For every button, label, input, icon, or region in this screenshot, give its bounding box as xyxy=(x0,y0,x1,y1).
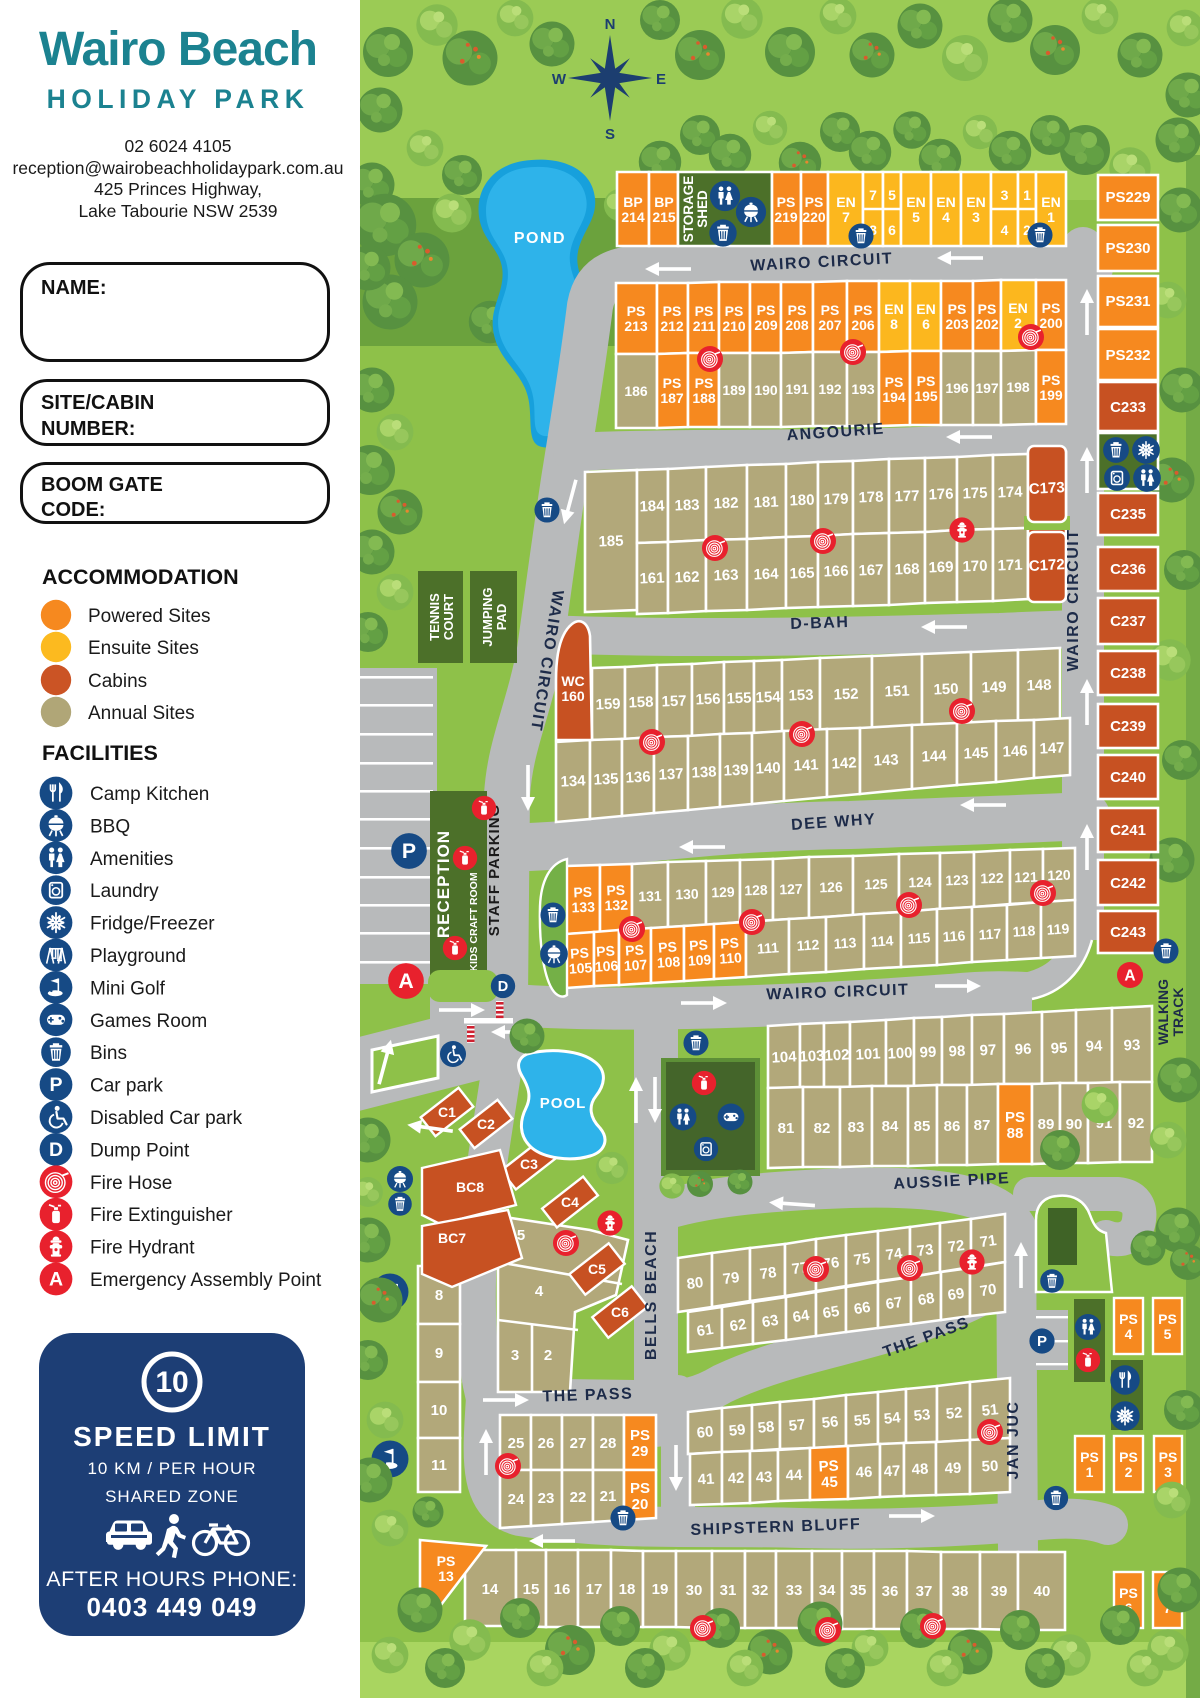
svg-text:60: 60 xyxy=(696,1423,714,1442)
svg-text:97: 97 xyxy=(979,1042,997,1060)
svg-text:PS230: PS230 xyxy=(1105,240,1150,257)
svg-text:PS132: PS132 xyxy=(604,882,629,914)
svg-text:87: 87 xyxy=(974,1117,991,1134)
svg-text:120: 120 xyxy=(1047,867,1071,884)
svg-text:Laundry: Laundry xyxy=(90,881,159,902)
svg-text:PS195: PS195 xyxy=(914,373,938,404)
svg-text:3: 3 xyxy=(511,1347,519,1364)
svg-text:92: 92 xyxy=(1128,1115,1145,1132)
svg-text:D-BAH: D-BAH xyxy=(790,614,850,633)
svg-text:104: 104 xyxy=(771,1048,798,1066)
svg-text:42: 42 xyxy=(727,1470,745,1488)
svg-text:127: 127 xyxy=(779,881,803,898)
svg-text:34: 34 xyxy=(819,1582,836,1599)
svg-text:PS219: PS219 xyxy=(774,194,798,225)
svg-text:117: 117 xyxy=(978,925,1002,942)
svg-text:32: 32 xyxy=(752,1582,769,1599)
svg-text:83: 83 xyxy=(848,1119,865,1136)
svg-text:70: 70 xyxy=(979,1281,998,1300)
svg-text:Bins: Bins xyxy=(90,1043,127,1064)
svg-text:86: 86 xyxy=(944,1118,961,1135)
svg-text:135: 135 xyxy=(593,770,619,788)
svg-text:C4: C4 xyxy=(561,1194,579,1210)
svg-text:78: 78 xyxy=(759,1264,778,1283)
svg-text:151: 151 xyxy=(884,682,910,700)
svg-text:C5: C5 xyxy=(588,1261,606,1277)
svg-text:PS203: PS203 xyxy=(945,301,969,332)
svg-text:RECEPTION: RECEPTION xyxy=(434,830,453,938)
svg-text:99: 99 xyxy=(919,1044,937,1062)
svg-text:PS220: PS220 xyxy=(802,194,826,225)
svg-text:Fridge/Freezer: Fridge/Freezer xyxy=(90,914,215,935)
svg-text:154: 154 xyxy=(755,688,781,706)
svg-text:61: 61 xyxy=(696,1321,715,1340)
svg-text:49: 49 xyxy=(944,1460,962,1478)
svg-text:PS88: PS88 xyxy=(1005,1109,1025,1142)
svg-text:3: 3 xyxy=(1001,187,1009,203)
svg-text:WALKINGTRACK: WALKINGTRACK xyxy=(1155,979,1186,1045)
svg-text:119: 119 xyxy=(1046,920,1070,937)
svg-text:Emergency Assembly Point: Emergency Assembly Point xyxy=(90,1270,322,1291)
svg-text:24: 24 xyxy=(508,1491,525,1508)
svg-text:196: 196 xyxy=(945,380,969,396)
svg-text:Powered Sites: Powered Sites xyxy=(88,606,211,627)
svg-text:93: 93 xyxy=(1123,1037,1141,1055)
svg-text:WC160: WC160 xyxy=(561,673,585,704)
svg-text:C2: C2 xyxy=(477,1116,495,1132)
svg-text:183: 183 xyxy=(674,496,700,514)
svg-text:39: 39 xyxy=(991,1583,1008,1600)
svg-text:152: 152 xyxy=(833,685,859,703)
svg-text:N: N xyxy=(605,16,616,33)
svg-text:16: 16 xyxy=(554,1581,571,1598)
svg-text:101: 101 xyxy=(855,1045,881,1063)
svg-text:PS231: PS231 xyxy=(1105,293,1150,310)
svg-text:46: 46 xyxy=(855,1464,873,1482)
svg-text:81: 81 xyxy=(778,1120,795,1137)
svg-text:PS13: PS13 xyxy=(437,1553,456,1584)
svg-text:64: 64 xyxy=(792,1307,812,1327)
svg-text:21: 21 xyxy=(600,1488,617,1505)
svg-text:C241: C241 xyxy=(1110,822,1146,839)
svg-text:14: 14 xyxy=(482,1581,499,1598)
svg-text:73: 73 xyxy=(916,1241,935,1260)
svg-text:165: 165 xyxy=(789,565,815,583)
svg-text:128: 128 xyxy=(744,882,768,899)
svg-text:82: 82 xyxy=(814,1120,831,1137)
svg-text:2: 2 xyxy=(544,1347,552,1364)
svg-text:SHARED ZONE: SHARED ZONE xyxy=(105,1487,239,1506)
svg-text:158: 158 xyxy=(628,693,654,711)
svg-text:1: 1 xyxy=(1023,187,1031,203)
svg-text:PS213: PS213 xyxy=(624,303,648,334)
svg-text:PS29: PS29 xyxy=(630,1427,650,1460)
svg-text:130: 130 xyxy=(675,886,699,903)
svg-text:68: 68 xyxy=(917,1290,936,1309)
svg-text:BBQ: BBQ xyxy=(90,816,130,837)
svg-text:C1: C1 xyxy=(438,1104,456,1120)
svg-text:198: 198 xyxy=(1006,379,1030,395)
svg-text:157: 157 xyxy=(661,692,687,710)
svg-text:PS202: PS202 xyxy=(975,301,999,332)
svg-text:141: 141 xyxy=(793,756,819,774)
svg-text:175: 175 xyxy=(962,484,988,502)
svg-text:124: 124 xyxy=(908,874,932,891)
svg-text:40: 40 xyxy=(1034,1583,1051,1600)
svg-text:BC7: BC7 xyxy=(438,1230,466,1246)
svg-text:147: 147 xyxy=(1039,739,1065,757)
svg-text:JAN JUC: JAN JUC xyxy=(1005,1401,1022,1480)
svg-text:S: S xyxy=(605,126,615,143)
svg-text:Amenities: Amenities xyxy=(90,849,173,870)
svg-text:PS200: PS200 xyxy=(1039,300,1063,331)
svg-text:123: 123 xyxy=(945,872,969,889)
svg-text:C173: C173 xyxy=(1028,479,1065,498)
svg-text:FACILITIES: FACILITIES xyxy=(42,741,158,765)
svg-text:156: 156 xyxy=(695,690,721,708)
svg-text:168: 168 xyxy=(894,561,920,579)
svg-text:11: 11 xyxy=(431,1457,447,1474)
svg-text:85: 85 xyxy=(914,1118,931,1135)
svg-text:190: 190 xyxy=(754,382,778,398)
svg-text:142: 142 xyxy=(831,754,857,772)
svg-text:94: 94 xyxy=(1085,1038,1103,1056)
svg-text:SPEED LIMIT: SPEED LIMIT xyxy=(73,1421,271,1452)
svg-text:121: 121 xyxy=(1014,869,1038,886)
svg-text:181: 181 xyxy=(753,493,779,511)
svg-text:186: 186 xyxy=(624,383,648,399)
svg-text:31: 31 xyxy=(720,1582,737,1599)
svg-text:84: 84 xyxy=(882,1118,899,1135)
svg-text:98: 98 xyxy=(948,1043,966,1061)
svg-text:140: 140 xyxy=(755,759,781,777)
svg-text:E: E xyxy=(656,71,666,88)
svg-text:PS209: PS209 xyxy=(754,302,778,333)
svg-text:C238: C238 xyxy=(1110,665,1146,682)
svg-text:6: 6 xyxy=(888,222,896,238)
svg-text:TENNISCOURT: TENNISCOURT xyxy=(427,593,456,641)
svg-text:48: 48 xyxy=(911,1461,929,1479)
svg-text:PS45: PS45 xyxy=(818,1458,840,1492)
svg-text:C6: C6 xyxy=(611,1304,629,1320)
svg-text:146: 146 xyxy=(1002,742,1028,760)
svg-text:163: 163 xyxy=(713,567,739,585)
svg-text:0403 449 049: 0403 449 049 xyxy=(86,1592,257,1622)
svg-text:PS206: PS206 xyxy=(851,302,875,333)
svg-text:PS232: PS232 xyxy=(1105,347,1150,364)
svg-text:5: 5 xyxy=(888,187,896,203)
svg-text:PS20: PS20 xyxy=(630,1480,650,1513)
svg-text:30: 30 xyxy=(686,1582,703,1599)
svg-text:167: 167 xyxy=(858,562,884,580)
svg-text:Mini Golf: Mini Golf xyxy=(90,978,166,999)
svg-text:15: 15 xyxy=(523,1581,540,1598)
svg-text:50: 50 xyxy=(981,1458,999,1476)
svg-text:PS211: PS211 xyxy=(693,303,716,334)
svg-text:137: 137 xyxy=(658,765,684,783)
svg-text:Disabled Car park: Disabled Car park xyxy=(90,1108,243,1129)
svg-text:PS210: PS210 xyxy=(722,303,746,334)
svg-text:69: 69 xyxy=(947,1285,966,1304)
svg-text:169: 169 xyxy=(928,559,954,577)
svg-text:10: 10 xyxy=(431,1402,448,1419)
svg-text:89: 89 xyxy=(1038,1116,1055,1133)
svg-text:STAFF PARKING: STAFF PARKING xyxy=(486,804,503,936)
svg-text:33: 33 xyxy=(786,1582,803,1599)
svg-text:8: 8 xyxy=(435,1287,443,1304)
svg-text:44: 44 xyxy=(785,1467,803,1485)
svg-text:ACCOMMODATION: ACCOMMODATION xyxy=(42,565,239,589)
svg-text:58: 58 xyxy=(757,1418,775,1437)
svg-text:53: 53 xyxy=(913,1406,931,1425)
svg-text:145: 145 xyxy=(963,744,989,762)
svg-text:18: 18 xyxy=(619,1581,636,1598)
svg-text:26: 26 xyxy=(538,1435,555,1452)
svg-text:25: 25 xyxy=(508,1435,525,1452)
svg-text:131: 131 xyxy=(638,888,662,905)
svg-text:43: 43 xyxy=(755,1469,773,1487)
svg-text:PS207: PS207 xyxy=(818,302,842,333)
svg-text:143: 143 xyxy=(873,751,899,769)
svg-text:55: 55 xyxy=(853,1411,871,1430)
svg-text:125: 125 xyxy=(864,876,888,893)
svg-text:112: 112 xyxy=(796,936,820,953)
svg-text:134: 134 xyxy=(560,772,586,790)
svg-text:PS187: PS187 xyxy=(660,375,684,406)
svg-text:162: 162 xyxy=(674,569,700,587)
svg-text:Fire Hose: Fire Hose xyxy=(90,1173,172,1194)
svg-text:41: 41 xyxy=(697,1471,715,1489)
svg-text:C240: C240 xyxy=(1110,769,1146,786)
svg-text:Car park: Car park xyxy=(90,1076,163,1097)
svg-text:C233: C233 xyxy=(1110,399,1146,416)
svg-text:51: 51 xyxy=(981,1401,999,1420)
svg-text:Playground: Playground xyxy=(90,946,186,967)
svg-text:59: 59 xyxy=(728,1421,746,1440)
svg-text:4: 4 xyxy=(535,1283,544,1300)
svg-text:180: 180 xyxy=(789,491,815,509)
svg-text:176: 176 xyxy=(928,485,954,503)
svg-text:193: 193 xyxy=(851,381,875,397)
svg-text:90: 90 xyxy=(1066,1116,1083,1133)
svg-text:113: 113 xyxy=(833,934,857,951)
svg-text:164: 164 xyxy=(753,565,779,583)
svg-text:C243: C243 xyxy=(1110,924,1146,941)
svg-text:C3: C3 xyxy=(520,1156,538,1172)
svg-text:PS194: PS194 xyxy=(882,374,906,405)
svg-text:170: 170 xyxy=(962,558,988,576)
svg-text:22: 22 xyxy=(570,1489,587,1506)
svg-text:7: 7 xyxy=(869,187,877,203)
svg-text:100: 100 xyxy=(887,1044,913,1062)
svg-text:57: 57 xyxy=(788,1416,806,1435)
svg-text:182: 182 xyxy=(713,494,739,512)
svg-text:178: 178 xyxy=(858,488,884,506)
svg-text:153: 153 xyxy=(788,686,814,704)
svg-text:37: 37 xyxy=(916,1583,933,1600)
svg-text:96: 96 xyxy=(1014,1041,1032,1059)
svg-text:136: 136 xyxy=(625,768,651,786)
svg-text:Annual Sites: Annual Sites xyxy=(88,703,195,724)
svg-text:115: 115 xyxy=(907,929,931,946)
svg-text:17: 17 xyxy=(586,1581,603,1598)
svg-text:28: 28 xyxy=(600,1435,617,1452)
svg-text:79: 79 xyxy=(722,1269,741,1288)
svg-text:BC8: BC8 xyxy=(456,1179,484,1195)
svg-text:103: 103 xyxy=(799,1047,825,1065)
svg-text:PS229: PS229 xyxy=(1105,189,1150,206)
svg-text:10 KM / PER HOUR: 10 KM / PER HOUR xyxy=(87,1459,256,1478)
svg-text:Cabins: Cabins xyxy=(88,671,147,692)
svg-text:66: 66 xyxy=(853,1299,872,1318)
svg-text:114: 114 xyxy=(870,932,894,949)
svg-text:197: 197 xyxy=(975,380,999,396)
svg-text:36: 36 xyxy=(882,1583,899,1600)
svg-text:65: 65 xyxy=(822,1303,841,1322)
svg-text:71: 71 xyxy=(979,1232,998,1251)
svg-text:189: 189 xyxy=(722,382,746,398)
svg-text:Ensuite Sites: Ensuite Sites xyxy=(88,638,199,659)
svg-text:67: 67 xyxy=(885,1294,904,1313)
svg-text:Dump Point: Dump Point xyxy=(90,1140,190,1161)
svg-text:9: 9 xyxy=(435,1345,443,1362)
svg-text:144: 144 xyxy=(921,747,947,765)
svg-text:BP215: BP215 xyxy=(652,194,676,225)
svg-text:Fire Hydrant: Fire Hydrant xyxy=(90,1238,195,1259)
svg-text:BELLS BEACH: BELLS BEACH xyxy=(643,1230,660,1360)
svg-text:POOL: POOL xyxy=(540,1095,587,1112)
svg-text:174: 174 xyxy=(997,483,1023,501)
svg-text:38: 38 xyxy=(952,1583,969,1600)
svg-text:150: 150 xyxy=(933,680,959,698)
svg-text:75: 75 xyxy=(853,1250,872,1269)
svg-text:AFTER HOURS PHONE:: AFTER HOURS PHONE: xyxy=(46,1567,298,1591)
svg-text:THE PASS: THE PASS xyxy=(542,1385,633,1405)
svg-text:47: 47 xyxy=(883,1463,901,1481)
svg-text:116: 116 xyxy=(942,927,966,944)
svg-text:171: 171 xyxy=(997,557,1023,575)
svg-text:19: 19 xyxy=(652,1581,669,1598)
svg-text:63: 63 xyxy=(761,1312,780,1331)
svg-text:159: 159 xyxy=(595,695,621,713)
svg-text:KIDS CRAFT ROOM: KIDS CRAFT ROOM xyxy=(468,872,480,971)
svg-text:122: 122 xyxy=(980,870,1004,887)
svg-text:27: 27 xyxy=(570,1435,587,1452)
svg-text:C236: C236 xyxy=(1110,561,1146,578)
svg-text:52: 52 xyxy=(945,1404,963,1423)
svg-text:72: 72 xyxy=(947,1237,966,1256)
svg-text:166: 166 xyxy=(823,563,849,581)
svg-text:56: 56 xyxy=(821,1413,839,1432)
svg-text:161: 161 xyxy=(639,570,665,588)
svg-text:C172: C172 xyxy=(1028,556,1065,575)
svg-text:184: 184 xyxy=(639,497,665,515)
svg-text:185: 185 xyxy=(598,532,624,550)
svg-text:POND: POND xyxy=(514,230,566,247)
svg-text:179: 179 xyxy=(823,490,849,508)
svg-text:PS133: PS133 xyxy=(571,884,596,916)
svg-text:PS199: PS199 xyxy=(1039,372,1063,403)
svg-text:Fire Extinguisher: Fire Extinguisher xyxy=(90,1205,233,1226)
svg-text:PS188: PS188 xyxy=(692,375,716,406)
svg-text:62: 62 xyxy=(729,1316,748,1335)
svg-text:155: 155 xyxy=(726,689,752,707)
svg-text:95: 95 xyxy=(1050,1040,1068,1058)
svg-text:PS208: PS208 xyxy=(785,302,809,333)
svg-text:35: 35 xyxy=(850,1582,867,1599)
svg-text:138: 138 xyxy=(691,763,717,781)
svg-text:177: 177 xyxy=(894,487,920,505)
svg-text:Games Room: Games Room xyxy=(90,1011,207,1032)
svg-text:23: 23 xyxy=(538,1490,555,1507)
svg-text:PS212: PS212 xyxy=(660,303,684,334)
svg-text:C239: C239 xyxy=(1110,718,1146,735)
svg-text:80: 80 xyxy=(686,1274,705,1293)
svg-text:139: 139 xyxy=(723,761,749,779)
svg-text:WAIRO CIRCUIT: WAIRO CIRCUIT xyxy=(1065,528,1082,671)
svg-text:10: 10 xyxy=(155,1366,188,1399)
svg-text:129: 129 xyxy=(711,884,735,901)
svg-text:149: 149 xyxy=(981,678,1007,696)
svg-text:W: W xyxy=(552,71,567,88)
svg-text:118: 118 xyxy=(1012,922,1036,939)
svg-text:C242: C242 xyxy=(1110,875,1146,892)
svg-text:148: 148 xyxy=(1026,676,1052,694)
svg-text:BP214: BP214 xyxy=(621,194,645,225)
svg-text:111: 111 xyxy=(757,939,780,956)
svg-text:54: 54 xyxy=(883,1409,902,1428)
svg-text:C237: C237 xyxy=(1110,613,1146,630)
svg-text:126: 126 xyxy=(819,879,843,896)
svg-text:102: 102 xyxy=(824,1046,850,1064)
svg-text:C235: C235 xyxy=(1110,506,1146,523)
svg-text:192: 192 xyxy=(818,381,842,397)
svg-text:Camp Kitchen: Camp Kitchen xyxy=(90,784,209,805)
svg-text:191: 191 xyxy=(785,381,809,397)
svg-text:4: 4 xyxy=(1001,222,1009,238)
